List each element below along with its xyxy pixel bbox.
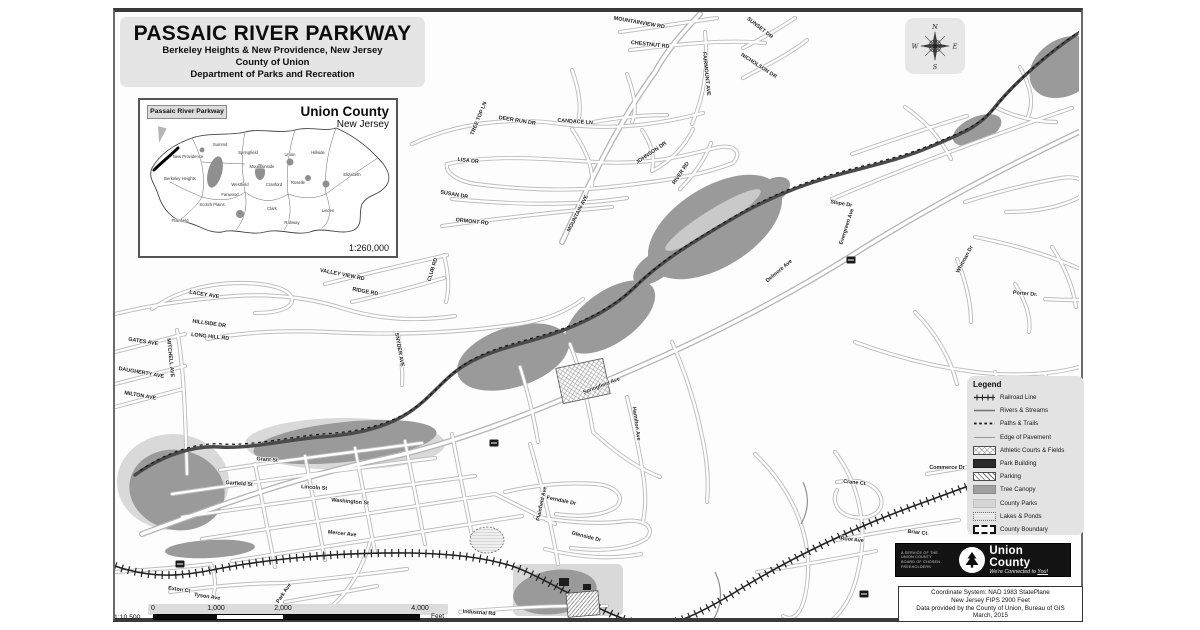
municipality-label: Westfield: [231, 182, 249, 187]
tree-icon: [959, 547, 985, 573]
title-block: PASSAIC RIVER PARKWAY Berkeley Heights &…: [120, 17, 425, 87]
legend-item-label: Lakes & Ponds: [1000, 513, 1042, 520]
county-parks-swatch-icon: [973, 499, 996, 508]
municipality-label: Hillside: [311, 150, 325, 155]
legend-item-parks: County Parks: [973, 497, 1078, 510]
legend-item-label: County Parks: [1000, 500, 1037, 507]
street-label: Crane Ct.: [843, 479, 868, 488]
athletic-field-swatch-icon: [973, 446, 996, 455]
scale-tick-2000: 2,000: [274, 605, 292, 612]
municipality-label: Fanwood: [221, 192, 239, 197]
inset-title-sub: New Jersey: [301, 119, 389, 130]
municipality-label: Linden: [322, 208, 335, 213]
info-line: Data provided by the County of Union, Bu…: [899, 605, 1082, 613]
street-label: Root Ave: [840, 536, 864, 544]
municipality-label: Roselle: [291, 180, 306, 185]
parking-swatch-icon: [973, 472, 996, 481]
inset-callout-label: Passaic River Parkway: [147, 105, 227, 119]
legend-item-boundary: County Boundary: [973, 523, 1078, 536]
street-label: HILLSIDE DR: [192, 319, 226, 330]
info-line: March, 2015: [899, 612, 1082, 620]
municipality-label: Summit: [213, 142, 228, 147]
athletic-field: [556, 358, 610, 403]
trail-line-icon: [973, 419, 996, 428]
river-line-icon: [973, 406, 996, 415]
street-label: Lincoln St: [301, 484, 328, 492]
municipality-label: Union: [285, 152, 297, 157]
street-label: Tyson Ave: [194, 592, 221, 602]
inset-title: Union County New Jersey: [301, 105, 389, 130]
street-label: Evergreen Ave: [838, 208, 855, 245]
logo-service-line: Freeholders: [901, 565, 955, 570]
legend-item-athletic: Athletic Courts & Fields: [973, 444, 1078, 457]
scale-tick-0: 0: [151, 605, 155, 612]
legend-item-label: Tree Canopy: [1000, 486, 1036, 493]
legend-item-label: Paths & Trails: [1000, 420, 1038, 427]
scale-ratio: 1:10,500: [114, 614, 140, 621]
street-label: LISA DR: [457, 157, 479, 165]
legend-item-label: Edge of Pavement: [1000, 434, 1051, 441]
inset-title-main: Union County: [301, 105, 389, 119]
street-label: Commerce Dr: [929, 465, 965, 471]
union-county-logo: A Service of the Union County Board of C…: [895, 543, 1071, 577]
municipality-label: Berkeley Heights: [164, 176, 196, 181]
legend-item-label: Rivers & Streams: [1000, 407, 1048, 414]
legend-item-label: County Boundary: [1000, 526, 1048, 533]
legend-item-label: Parking: [1000, 473, 1021, 480]
legend-item-rivers: Rivers & Streams: [973, 404, 1078, 417]
compass-south-label: S: [933, 63, 938, 70]
map-county: County of Union: [126, 57, 419, 69]
scale-bar-segment: [217, 615, 284, 619]
park-building-swatch-icon: [973, 459, 996, 468]
street-label: Industrial Rd: [462, 609, 495, 617]
legend-item-canopy: Tree Canopy: [973, 483, 1078, 496]
street-label: RIDGE RD: [352, 287, 379, 298]
map-department: Department of Parks and Recreation: [126, 69, 419, 81]
legend-item-label: Park Building: [1000, 460, 1036, 467]
compass-east-label: E: [952, 43, 958, 51]
logo-name: Union County: [989, 545, 1065, 569]
scale-bar-segment: [283, 615, 419, 619]
scale-tick-1000: 1,000: [207, 605, 225, 612]
parking-area: [566, 591, 600, 618]
railroad-line-icon: [973, 393, 996, 402]
logo-service-text: A Service of the Union County Board of C…: [901, 551, 955, 569]
legend-item-label: Railroad Line: [1000, 394, 1036, 401]
lakes-ponds-swatch-icon: [973, 512, 996, 521]
info-line: Coordinate System: NAD 1983 StatePlane: [899, 589, 1082, 597]
legend-item-paths: Paths & Trails: [973, 417, 1078, 430]
logo-tagline: We're Connected to You!: [989, 569, 1065, 576]
compass-icon: N E S W: [911, 22, 959, 70]
inset-county-map: Summit New Providence Berkeley Heights S…: [140, 122, 396, 238]
logo-name-block: Union County We're Connected to You!: [989, 545, 1065, 576]
street-label: Ferndale Dr: [546, 495, 577, 507]
county-boundary-swatch-icon: [973, 525, 996, 534]
street-label: TREE TOP LN: [470, 101, 489, 136]
legend-title: Legend: [973, 380, 1078, 389]
coordinate-info-box: Coordinate System: NAD 1983 StatePlane N…: [898, 586, 1083, 622]
tree-canopy-swatch-icon: [973, 485, 996, 494]
legend-item-lakes: Lakes & Ponds: [973, 510, 1078, 523]
municipality-label: Springfield: [238, 150, 258, 155]
map-title: PASSAIC RIVER PARKWAY: [126, 22, 419, 45]
logo-tagline-emphasis: You!: [1037, 569, 1048, 575]
street-label: Slope Dr: [830, 199, 854, 209]
info-line: New Jersey FIPS 2900 Feet: [899, 597, 1082, 605]
legend-item-railroad: Railroad Line: [973, 391, 1078, 404]
street-label: DEER RUN DR: [498, 115, 536, 127]
pavement-line-icon: [973, 433, 996, 442]
legend-item-label: Athletic Courts & Fields: [1000, 447, 1064, 454]
scale-bar: [153, 614, 420, 620]
legend-item-building: Park Building: [973, 457, 1078, 470]
street-label: Glenside Dr: [571, 530, 603, 543]
inset-scale: 1:260,000: [349, 243, 389, 253]
legend-item-parking: Parking: [973, 470, 1078, 483]
scale-unit: Feet: [431, 613, 444, 620]
municipality-label: New Providence: [173, 154, 204, 159]
municipality-label: Scotch Plains: [199, 202, 224, 207]
municipality-label: Clark: [267, 206, 278, 211]
municipality-label: Mountainside: [250, 164, 276, 169]
legend-panel: Legend Railroad Line Rivers & Streams Pa…: [967, 376, 1084, 535]
municipality-label: Rahway: [284, 220, 300, 225]
logo-tagline-text: We're Connected to: [989, 569, 1037, 575]
street-label: Delmore Ave: [765, 258, 794, 284]
compass-north-label: N: [931, 23, 938, 31]
street-label: Porter Dr.: [1013, 290, 1038, 298]
compass-west-label: W: [912, 43, 920, 51]
compass-rose: N E S W: [905, 18, 965, 74]
municipality-label: Plainfield: [172, 218, 190, 223]
street-label: SNYDER AVE: [393, 332, 405, 367]
street-label: Mercer Ave: [328, 530, 357, 539]
scale-bar-segment: [154, 615, 217, 619]
lake-pond: [470, 527, 504, 553]
street-label: MOUNTAIN AVE: [566, 194, 590, 233]
inset-map: Passaic River Parkway Union County New J…: [138, 98, 398, 258]
legend-item-pavement: Edge of Pavement: [973, 431, 1078, 444]
street-label: Briar Ct.: [907, 529, 929, 537]
map-sheet: MOUNTAINVIEW RD CHESTNUT RD SUNSET DR NI…: [0, 0, 1200, 630]
municipality-label: Elizabeth: [343, 172, 361, 177]
street-label: SUNSET DR: [745, 16, 773, 40]
map-subtitle: Berkeley Heights & New Providence, New J…: [126, 45, 419, 57]
scale-tick-4000: 4,000: [411, 605, 429, 612]
municipality-label: Cranford: [266, 182, 283, 187]
